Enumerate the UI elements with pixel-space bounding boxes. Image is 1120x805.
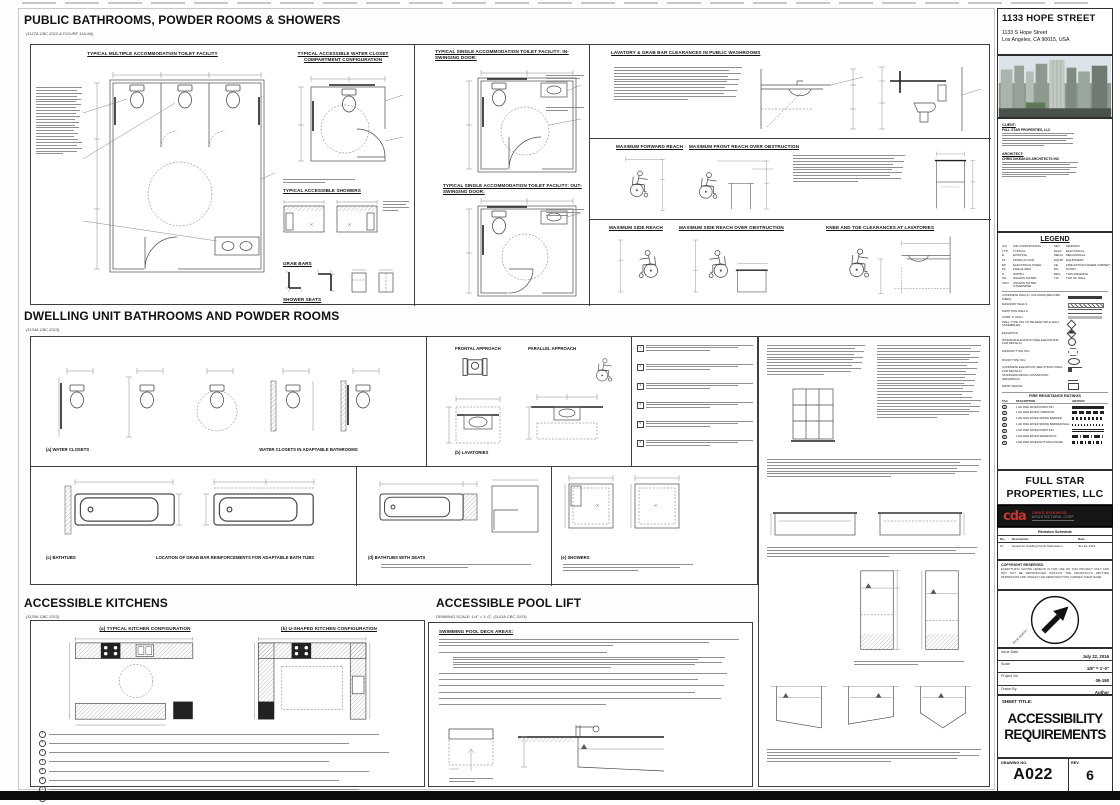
note-text-line (453, 664, 695, 665)
note-text-line (767, 462, 960, 463)
label-frontal-approach: FRONTAL APPROACH (455, 346, 501, 351)
notes-single-in (546, 107, 584, 113)
note-text-line (877, 391, 973, 392)
kitchen-note-row: 5 (39, 768, 419, 775)
section-kitchens-title: ACCESSIBLE KITCHENS (24, 596, 168, 610)
section-pool-subtitle: DRAWING SCALE: 1/4" = 1'-0". (1141A CBC … (436, 614, 527, 619)
legend-symbol-row: STANDARD DETAIL CONVENTION (DRAWINGS) (1002, 374, 1108, 382)
shower-plan-drawing (563, 474, 619, 540)
legend-title: LEGEND (1002, 236, 1108, 243)
field-label: Scale (1001, 662, 1010, 666)
note-text-line (767, 749, 981, 750)
fire-ratings-rows: 11 HR FIRE RATED PARTITION21 HR FIRE RAT… (1002, 404, 1108, 446)
fire-ratings-title: FIRE RESISTANCE RATINGS (1002, 394, 1108, 398)
notes-right-column (767, 749, 981, 763)
note-text-line (36, 87, 82, 88)
note-text-line (49, 780, 339, 781)
legend-symbol-row: DROP CEILING (1002, 382, 1108, 391)
dwelling-panel: (a) WATER CLOSETS WATER CLOSETS IN ADAPT… (30, 336, 758, 585)
label-lavatories: (b) LAVATORIES (455, 450, 488, 455)
field-label: Issue Date (1001, 650, 1018, 654)
notes-single-in (546, 75, 584, 84)
note-text-line (453, 657, 725, 658)
note-number-icon: 3 (39, 749, 46, 756)
legend-symbol-label: DROP CEILING (1002, 385, 1064, 388)
note-text-line (36, 99, 81, 100)
note-text-line (646, 423, 738, 424)
legend-symbol-swatch (1068, 375, 1108, 381)
note-text-line (546, 215, 568, 216)
plot-stamp-text (22, 2, 1092, 4)
heading-side-reach-obstruction: MAXIMUM SIDE REACH OVER OBSTRUCTION (679, 225, 784, 231)
note-text-block (646, 440, 753, 447)
parallel-approach-plan (523, 381, 611, 447)
note-text-line (439, 639, 739, 640)
note-text-line (877, 397, 972, 398)
note-text-line (793, 175, 890, 176)
heading-pool-deck: SWIMMING POOL DECK AREAS: (439, 629, 513, 635)
lavatory-note: 1 (637, 345, 753, 352)
pool-lift-plan-drawing (441, 723, 503, 775)
front-reach-obstruction-drawing (683, 153, 783, 217)
shower-stall-drawing (281, 198, 327, 236)
fire-rating-graphic (1072, 424, 1104, 426)
note-text-line (767, 755, 979, 756)
notes-showers-dwelling (563, 564, 693, 573)
notes-right-column (767, 459, 981, 479)
fire-rating-graphic (1072, 406, 1104, 409)
note-text-line (36, 142, 82, 143)
window-elevation-drawing (789, 385, 837, 447)
note-text-line (36, 151, 77, 152)
toilet-grab-bar-elevation-drawing (876, 63, 981, 135)
note-text-line (877, 385, 974, 386)
fire-col-header: TAG (1002, 399, 1016, 403)
note-text-line (646, 364, 753, 365)
note-text-line (453, 662, 722, 663)
note-text-line (614, 73, 741, 74)
note-text-line (614, 81, 727, 82)
sheet-title-line1: ACCESSIBILITY (998, 711, 1112, 727)
note-text-line (36, 107, 76, 108)
fire-rating-description: 1 HR FIRE RATED SMOKE BARRIER (1016, 417, 1072, 420)
architect-label: ARCHITECT: (1002, 152, 1108, 156)
note-text-line (767, 752, 960, 753)
note-number-icon: 1 (637, 345, 644, 352)
note-text-line (767, 374, 824, 375)
note-text-line (877, 354, 970, 355)
label-grab-location: LOCATION OF GRAB BAR REINFORCEMENTS FOR … (119, 555, 351, 560)
legend-symbol-label: ELEVATION (1002, 332, 1064, 335)
heading-typical-kitchen: (a) TYPICAL KITCHEN CONFIGURATION (69, 626, 221, 632)
note-text-line (36, 110, 80, 111)
revision-cell: 10 (1000, 544, 1012, 548)
note-text-line (877, 371, 966, 372)
note-text-line (36, 96, 77, 97)
bathtub-plan-drawing (45, 474, 185, 540)
fire-rating-graphic (1072, 435, 1104, 438)
panel-divider (426, 337, 427, 466)
note-text-line (383, 201, 409, 202)
note-text-line (283, 179, 355, 180)
architect-logo-mark: cda (1003, 509, 1026, 524)
note-text-line (646, 345, 753, 346)
forward-reach-figure-drawing (613, 153, 675, 217)
legend-abbr-cell: TW (1054, 277, 1066, 281)
heading-ushaped-kitchen: (b) U-SHAPED KITCHEN CONFIGURATION (253, 626, 405, 632)
wheelchair-side-icon (591, 357, 625, 383)
legend-symbol-label: CONCRETE ELEVATION (SEE STRUCTURAL FOR D… (1002, 366, 1064, 372)
lavatory-elevation-drawing (753, 63, 863, 135)
note-text-line (381, 564, 531, 565)
note-number-icon: 5 (637, 421, 644, 428)
shower-plan-drawing (629, 474, 685, 540)
note-text-line (439, 698, 721, 699)
note-text-line (563, 570, 638, 571)
note-text-line (793, 167, 903, 168)
note-text-line (36, 90, 77, 91)
note-text-line (614, 93, 724, 94)
note-text-line (36, 133, 78, 134)
note-text-line (1002, 176, 1046, 177)
bathtub-with-seat-drawing (366, 474, 546, 540)
lavatory-note: 2 (637, 364, 753, 371)
note-text-line (646, 388, 710, 389)
fire-rating-description: 1 HR FIRE RATED CORRIDOR (1016, 411, 1072, 414)
note-text-line (614, 87, 725, 88)
reservoir-section-drawing (854, 567, 900, 657)
pool-paragraph (439, 639, 739, 648)
fire-tag-icon: 2 (1002, 411, 1007, 416)
note-text-line (439, 704, 606, 705)
revision-row: 10Issued for Grading Permit SubmissionJu… (998, 543, 1112, 549)
note-text-line (767, 468, 957, 469)
note-text-line (36, 145, 77, 146)
pool-panel: SWIMMING POOL DECK AREAS: (428, 622, 753, 787)
note-text-line (383, 210, 398, 211)
note-text-line (439, 673, 727, 674)
fire-rating-description: 2 HR FIRE RATED SEPARATION (1016, 435, 1072, 438)
label-water-closets: (a) WATER CLOSETS (46, 447, 89, 452)
note-text-line (877, 368, 977, 369)
shower-seat-drawing (349, 268, 370, 296)
divider (1002, 392, 1108, 393)
kitchen-note-row: 4 (39, 759, 419, 766)
label-bathtubs: (c) BATHTUBS (46, 555, 76, 560)
note-text-line (646, 404, 738, 405)
pool-profile-drawing (767, 675, 831, 743)
note-text-line (767, 550, 956, 551)
note-text-line (767, 362, 862, 363)
notes-multiple-toilet (36, 87, 82, 156)
notes-right-column (767, 345, 865, 377)
side-reach-obstruction-drawing (681, 235, 779, 297)
legend-abbr-row: UNOUNLESS NOTED OTHERWISE (1002, 281, 1108, 289)
kitchen-note-row: 1 (39, 731, 419, 738)
note-text-block (646, 421, 753, 428)
note-text-line (563, 564, 693, 565)
legend-symbol-swatch (1068, 367, 1108, 372)
fire-tag-icon: 3 (1002, 417, 1007, 422)
owner-name-line1: FULL STAR (998, 475, 1112, 488)
note-text-line (614, 79, 739, 80)
note-text-line (49, 743, 349, 744)
wheelchair-top-icon (463, 355, 487, 379)
field-value: 1/8" = 1'-0" (1087, 666, 1109, 671)
reservoir-section-drawing (919, 567, 965, 657)
dwelling-notes-panel (758, 336, 990, 787)
note-text-line (36, 148, 82, 149)
adaptable-water-closet-diagram (269, 363, 317, 443)
pool-profile-drawing (839, 675, 903, 743)
copyright-box: COPYRIGHT RESERVED. EVERYTHING SHOWN HER… (997, 560, 1113, 590)
lavatory-note: 3 (637, 383, 753, 390)
lavatory-note: 4 (637, 402, 753, 409)
fire-col-header: GRAPHIC (1072, 399, 1108, 403)
field-label: Drawn By (1001, 687, 1017, 691)
divider (1002, 291, 1108, 292)
drawing-no-value: A022 (998, 766, 1068, 784)
label-parallel-approach: PARALLEL APPROACH (528, 346, 576, 351)
note-text-line (439, 642, 709, 643)
legend-symbol-swatch (1068, 296, 1108, 300)
note-text-line (36, 122, 79, 123)
note-text-line (877, 377, 965, 378)
note-text-line (49, 752, 389, 753)
architect-name: CHRIS DIKEAKOS ARCHITECTS INC (1002, 157, 1108, 161)
note-text-line (36, 153, 63, 154)
note-text-line (877, 351, 980, 352)
fire-rating-description: 1 HR FIRE RATED SMOKE BARRIER WALL (1016, 423, 1072, 426)
panel-divider (589, 219, 991, 220)
water-closet-diagram (193, 363, 241, 443)
fire-rating-row: 72 HR FIRE RATED EXIT ENCLOSURE (1002, 440, 1108, 446)
note-number-icon: 4 (39, 759, 46, 766)
note-text-line (877, 348, 971, 349)
note-text-line (877, 400, 981, 401)
grab-bar-drawing (312, 268, 336, 296)
pool-list-item (439, 652, 729, 655)
fire-tag-icon: 4 (1002, 423, 1007, 428)
legend-symbol-swatch (1068, 358, 1108, 365)
note-number-icon: 4 (637, 402, 644, 409)
note-text-line (854, 664, 918, 665)
owner-box: FULL STAR PROPERTIES, LLC (997, 470, 1113, 505)
revision-cell: Issued for Grading Permit Submission (1012, 544, 1078, 548)
note-number-icon: 3 (637, 383, 644, 390)
north-arrow-icon (1028, 593, 1082, 647)
note-number-icon: 6 (39, 777, 46, 784)
note-text-line (614, 96, 736, 97)
label-tub-seats: (d) BATHTUBS WITH SEATS (368, 555, 425, 560)
kitchen-note-row: 6 (39, 777, 419, 784)
tub-elevation-drawing (874, 499, 966, 541)
note-text-line (49, 761, 329, 762)
oval-symbol-icon (1068, 358, 1080, 365)
note-text-line (767, 553, 975, 554)
note-text-line (877, 414, 969, 415)
note-text-line (646, 383, 753, 384)
revision-col-header: Date (1078, 537, 1110, 541)
note-text-line (36, 136, 74, 137)
note-text-line (36, 119, 75, 120)
note-text-line (854, 661, 964, 662)
water-closet-diagram (123, 363, 171, 443)
fire-rating-graphic (1072, 429, 1104, 432)
legend-symbol-label: DOOR TYPE TAG (1002, 359, 1064, 362)
fire-rating-graphic (1072, 417, 1104, 420)
section-public-subtitle: (1127A CBC 2013 & FIGURE 11A-9A) (26, 31, 94, 36)
heading-side-reach: MAXIMUM SIDE REACH (609, 225, 663, 231)
section-kitchens-subtitle: (1135A CBC 2013) (26, 614, 59, 619)
section-pool-title: ACCESSIBLE POOL LIFT (436, 596, 581, 610)
pool-profile-drawing (911, 675, 975, 743)
note-text-line (767, 357, 863, 358)
note-text-line (546, 110, 568, 111)
city-photo-illustration (998, 56, 1112, 117)
note-text-line (49, 734, 379, 735)
lavatory-note: 5 (637, 421, 753, 428)
rev-label: REV. (1068, 759, 1112, 765)
public-panel: TYPICAL MULTIPLE ACCOMMODATION TOILET FA… (30, 44, 990, 305)
note-text-line (1002, 169, 1070, 170)
legend-symbol-row: INTERIOR ELEVATION (SEE ELEVATIONS FOR D… (1002, 338, 1108, 348)
label-showers: (e) SHOWERS (561, 555, 590, 560)
revision-col-header: No. (1000, 537, 1012, 541)
copyright-text: EVERYTHING SHOWN HEREON IS FOR USE ON TH… (998, 568, 1112, 580)
client-name: FULL STAR PROPERTIES, LLC (1002, 128, 1108, 132)
panel-divider (589, 45, 590, 306)
pool-lift-section-drawing (514, 723, 669, 775)
note-text-line (767, 348, 855, 349)
client-label: CLIENT: (1002, 123, 1108, 127)
grey-symbol-icon (1068, 316, 1102, 320)
note-text-block (646, 345, 753, 352)
note-text-line (767, 371, 851, 372)
legend-abbr-cell (1066, 282, 1110, 290)
tub-elevation-drawing (769, 499, 861, 541)
legend-symbol-row: DOOR TYPE TAG (1002, 357, 1108, 366)
section-dwelling-subtitle: (1134A CBC 2013) (26, 327, 59, 332)
note-text-line (646, 350, 710, 351)
note-text-line (283, 182, 325, 183)
client-architect-box: CLIENT: FULL STAR PROPERTIES, LLC ARCHIT… (997, 118, 1113, 232)
sheet-title-label: SHEET TITLE: (998, 696, 1112, 704)
revision-title: Revision Schedule (998, 528, 1112, 536)
note-text-line (453, 659, 698, 660)
note-text-line (877, 380, 975, 381)
panel-divider (589, 138, 991, 139)
shower-stall-drawing (334, 198, 380, 236)
hex-symbol-icon (1068, 348, 1078, 356)
project-name: 1133 HOPE STREET (998, 9, 1112, 24)
note-text-line (36, 93, 82, 94)
note-text-line (646, 369, 710, 370)
note-number-icon: 6 (637, 440, 644, 447)
owner-name-line2: PROPERTIES, LLC (998, 488, 1112, 501)
section-dwelling-title: DWELLING UNIT BATHROOMS AND POWDER ROOMS (24, 309, 339, 323)
panel-divider (31, 466, 759, 467)
revision-rows: 10Issued for Grading Permit SubmissionJu… (998, 543, 1112, 549)
note-text-line (767, 473, 955, 474)
heading-wc-compartment: TYPICAL ACCESSIBLE WATER CLOSET COMPARTM… (279, 51, 407, 63)
elev-symbol-icon (1067, 328, 1077, 338)
note-text-line (767, 345, 865, 346)
notes-right-column (767, 547, 977, 559)
note-text-line (1002, 167, 1077, 168)
sheet-title-box: SHEET TITLE: ACCESSIBILITY REQUIREMENTS (997, 695, 1113, 758)
notes-right-column (877, 345, 981, 420)
revision-header: No.DescriptionDate (998, 536, 1112, 543)
kitchen-note-row: 3 (39, 749, 419, 756)
note-text-line (614, 90, 737, 91)
note-text-line (1002, 172, 1076, 173)
legend-symbol-swatch (1068, 309, 1108, 314)
heading-grab-bars: GRAB BARS (283, 261, 312, 267)
note-text-line (646, 440, 753, 441)
note-text-line (646, 407, 710, 408)
note-text-line (793, 158, 894, 159)
note-text-line (877, 383, 964, 384)
heading-single-out: TYPICAL SINGLE ACCOMMODATION TOILET FACI… (443, 183, 585, 195)
legend-symbol-swatch (1068, 303, 1108, 308)
note-text-line (1002, 164, 1070, 165)
panel-divider (414, 45, 415, 306)
legend-box: LEGEND A/CAIR CONDITIONINGMINMINIMUMTYPT… (997, 232, 1113, 470)
ushaped-kitchen-plan (251, 637, 386, 727)
note-text-line (614, 99, 688, 100)
note-text-line (383, 207, 409, 208)
legend-symbol-row: ELEVATION (1002, 329, 1108, 338)
note-text-line (767, 359, 853, 360)
knee-toe-clearance-drawing (819, 233, 967, 297)
project-address-2: Los Angeles, CA 90015, USA (1002, 37, 1112, 44)
note-text-line (614, 70, 729, 71)
architect-logo-contact-line (1032, 520, 1074, 521)
note-text-line (439, 692, 695, 693)
legend-symbol-label: MASONRY WALLS (1002, 303, 1064, 306)
note-text-line (36, 113, 76, 114)
heading-multiple-toilet: TYPICAL MULTIPLE ACCOMMODATION TOILET FA… (45, 51, 260, 57)
section-public-title: PUBLIC BATHROOMS, POWDER ROOMS & SHOWERS (24, 13, 340, 27)
note-text-line (646, 442, 738, 443)
note-text-line (1002, 135, 1067, 136)
legend-symbol-label: PARTITION WALLS (1002, 310, 1064, 313)
notes-single-out (546, 209, 584, 218)
heading-front-reach-obstruction: MAXIMUM FRONT REACH OVER OBSTRUCTION (689, 144, 799, 150)
note-text-line (439, 645, 613, 646)
note-text-line (439, 685, 724, 686)
panel-divider (551, 466, 552, 586)
field-value: July 22, 2016 (1082, 654, 1109, 659)
note-number-icon: 2 (637, 364, 644, 371)
note-text-line (793, 164, 893, 165)
note-text-line (439, 652, 607, 653)
note-text-line (563, 567, 680, 568)
legend-symbol-label: INTERIOR ELEVATION (SEE ELEVATIONS FOR D… (1002, 339, 1064, 345)
note-text-line (877, 365, 967, 366)
north-arrow-label: TRUE NORTH (1011, 629, 1028, 646)
note-text-line (646, 402, 753, 403)
note-text-line (1002, 162, 1078, 163)
project-photo (997, 55, 1113, 118)
note-text-line (877, 388, 963, 389)
note-text-line (453, 667, 611, 668)
architect-address-lines (1002, 162, 1078, 177)
note-text-line (383, 204, 406, 205)
grab-bar-drawing (283, 268, 307, 296)
lavatory-note: 6 (637, 440, 753, 447)
